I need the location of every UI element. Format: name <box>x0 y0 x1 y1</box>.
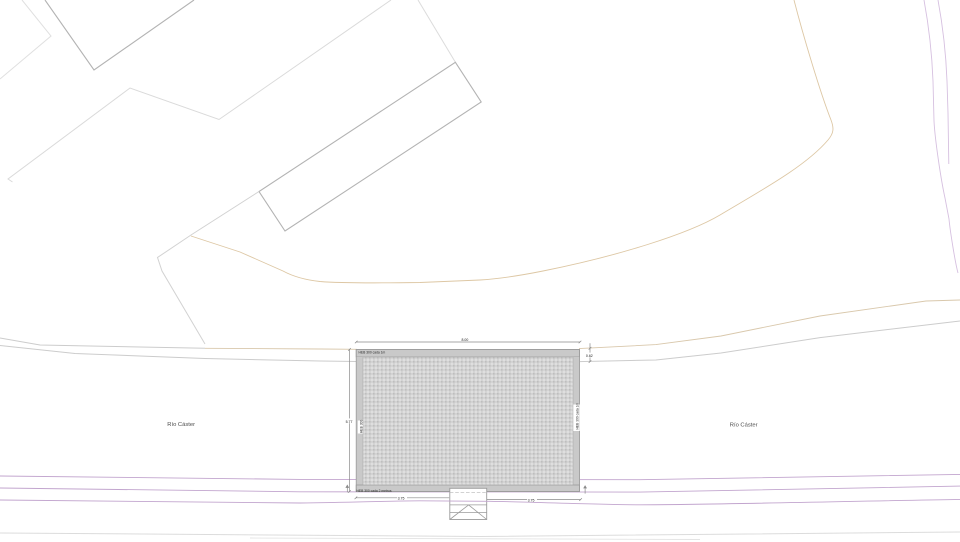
svg-text:HEB 300: HEB 300 <box>359 420 363 433</box>
svg-text:3.75: 3.75 <box>528 498 535 502</box>
svg-text:3.75: 3.75 <box>398 497 405 501</box>
svg-text:5.77: 5.77 <box>346 420 353 424</box>
svg-text:8.00: 8.00 <box>462 338 469 342</box>
svg-text:HEB 300 cada 1m: HEB 300 cada 1m <box>359 351 386 355</box>
svg-text:HEB 300 cada 1m: HEB 300 cada 1m <box>576 402 580 429</box>
svg-text:0.62: 0.62 <box>586 354 593 358</box>
svg-text:Río Cáster: Río Cáster <box>730 422 758 428</box>
svg-text:HEB 300 cada 2 metros: HEB 300 cada 2 metros <box>357 489 392 493</box>
svg-text:Río Cáster: Río Cáster <box>167 422 195 428</box>
